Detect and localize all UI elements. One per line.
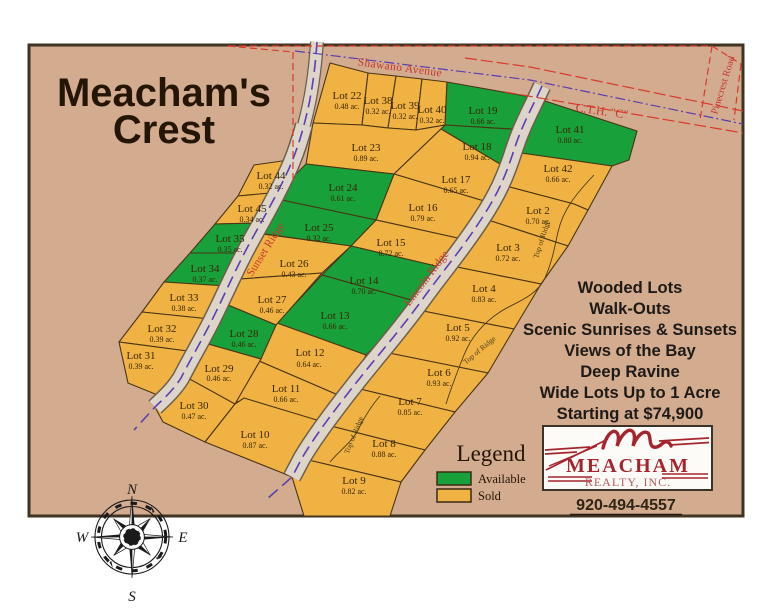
svg-text:0.72 ac.: 0.72 ac. [495, 254, 520, 263]
svg-text:Lot 26: Lot 26 [279, 258, 309, 270]
svg-text:Starting at $74,900: Starting at $74,900 [557, 404, 704, 423]
svg-text:0.35 ac.: 0.35 ac. [217, 245, 242, 254]
svg-text:Lot 9: Lot 9 [342, 475, 366, 487]
svg-text:0.94 ac.: 0.94 ac. [464, 153, 489, 162]
svg-text:Lot 15: Lot 15 [376, 237, 406, 249]
svg-text:Lot 14: Lot 14 [349, 275, 379, 287]
svg-text:Lot 31: Lot 31 [126, 350, 155, 362]
svg-text:Walk-Outs: Walk-Outs [589, 299, 670, 318]
svg-text:Lot 12: Lot 12 [295, 347, 324, 359]
svg-text:0.66 ac.: 0.66 ac. [545, 175, 570, 184]
svg-text:Lot 38: Lot 38 [363, 95, 393, 107]
svg-text:Scenic Sunrises & Sunsets: Scenic Sunrises & Sunsets [523, 320, 737, 339]
svg-text:Lot 18: Lot 18 [462, 141, 492, 153]
svg-text:0.46 ac.: 0.46 ac. [259, 306, 284, 315]
svg-text:Lot 5: Lot 5 [446, 322, 470, 334]
svg-text:S: S [128, 589, 136, 605]
svg-text:Lot 35: Lot 35 [215, 233, 245, 245]
svg-text:E: E [177, 530, 187, 546]
svg-text:Lot 45: Lot 45 [237, 203, 267, 215]
svg-text:Lot 19: Lot 19 [468, 105, 498, 117]
svg-text:0.37 ac.: 0.37 ac. [192, 275, 217, 284]
svg-text:Lot 16: Lot 16 [408, 202, 438, 214]
svg-text:Lot 11: Lot 11 [272, 383, 301, 395]
svg-text:Sold: Sold [478, 489, 502, 503]
svg-text:0.87 ac.: 0.87 ac. [242, 441, 267, 450]
svg-text:Lot 25: Lot 25 [304, 222, 334, 234]
svg-text:0.32 ac.: 0.32 ac. [258, 182, 283, 191]
svg-text:0.32 ac.: 0.32 ac. [365, 107, 390, 116]
svg-text:Lot 3: Lot 3 [496, 242, 520, 254]
svg-text:0.66 ac.: 0.66 ac. [273, 395, 298, 404]
svg-text:0.89 ac.: 0.89 ac. [353, 154, 378, 163]
svg-text:Lot 4: Lot 4 [472, 283, 496, 295]
svg-text:Lot 32: Lot 32 [147, 323, 176, 335]
svg-text:Lot 10: Lot 10 [240, 429, 270, 441]
svg-text:0.43 ac.: 0.43 ac. [281, 270, 306, 279]
svg-text:REALTY, INC.: REALTY, INC. [585, 475, 671, 489]
svg-text:Deep Ravine: Deep Ravine [580, 362, 680, 381]
svg-text:Lot 42: Lot 42 [543, 163, 572, 175]
svg-text:0.46 ac.: 0.46 ac. [206, 374, 231, 383]
svg-text:0.46 ac.: 0.46 ac. [231, 340, 256, 349]
svg-text:Lot 40: Lot 40 [417, 104, 447, 116]
svg-text:0.34 ac.: 0.34 ac. [239, 215, 264, 224]
svg-text:Lot 8: Lot 8 [372, 438, 396, 450]
svg-text:Lot 13: Lot 13 [320, 310, 350, 322]
svg-text:Lot 7: Lot 7 [398, 396, 422, 408]
svg-text:0.32 ac.: 0.32 ac. [306, 234, 331, 243]
svg-text:Lot 41: Lot 41 [555, 124, 584, 136]
svg-text:Lot 23: Lot 23 [351, 142, 381, 154]
svg-text:0.48 ac.: 0.48 ac. [334, 102, 359, 111]
svg-text:0.65 ac.: 0.65 ac. [443, 186, 468, 195]
svg-text:920-494-4557: 920-494-4557 [576, 497, 676, 514]
svg-text:Lot 27: Lot 27 [257, 294, 287, 306]
svg-text:0.92 ac.: 0.92 ac. [445, 334, 470, 343]
svg-text:0.70 ac.: 0.70 ac. [351, 287, 376, 296]
svg-text:0.72 ac.: 0.72 ac. [378, 249, 403, 258]
svg-text:0.79 ac.: 0.79 ac. [410, 214, 435, 223]
svg-text:0.39 ac.: 0.39 ac. [149, 335, 174, 344]
svg-text:N: N [126, 482, 138, 498]
svg-text:Lot 33: Lot 33 [169, 292, 199, 304]
svg-text:0.32 ac.: 0.32 ac. [392, 112, 417, 121]
svg-text:Wide Lots Up to 1 Acre: Wide Lots Up to 1 Acre [540, 383, 721, 402]
svg-text:Lot 24: Lot 24 [328, 182, 358, 194]
svg-text:Wooded Lots: Wooded Lots [578, 278, 683, 297]
svg-text:0.39 ac.: 0.39 ac. [128, 362, 153, 371]
svg-text:Lot 39: Lot 39 [390, 100, 420, 112]
svg-text:0.61 ac.: 0.61 ac. [330, 194, 355, 203]
svg-text:Legend: Legend [457, 441, 526, 466]
svg-text:Views of the Bay: Views of the Bay [564, 341, 696, 360]
svg-text:Lot 44: Lot 44 [256, 170, 286, 182]
svg-text:0.66 ac.: 0.66 ac. [470, 117, 495, 126]
svg-text:0.80 ac.: 0.80 ac. [557, 136, 582, 145]
svg-text:Lot 2: Lot 2 [526, 205, 550, 217]
svg-text:0.38 ac.: 0.38 ac. [171, 304, 196, 313]
svg-text:Lot 30: Lot 30 [179, 400, 209, 412]
svg-text:0.66 ac.: 0.66 ac. [322, 322, 347, 331]
svg-text:Lot 17: Lot 17 [441, 174, 471, 186]
svg-text:Crest: Crest [113, 108, 215, 152]
svg-text:0.93 ac.: 0.93 ac. [426, 379, 451, 388]
svg-text:Lot 28: Lot 28 [229, 328, 259, 340]
svg-text:0.82 ac.: 0.82 ac. [341, 487, 366, 496]
svg-text:Lot 22: Lot 22 [332, 90, 361, 102]
svg-text:0.47 ac.: 0.47 ac. [181, 412, 206, 421]
svg-text:0.32 ac.: 0.32 ac. [419, 116, 444, 125]
svg-text:Lot 6: Lot 6 [427, 367, 451, 379]
svg-text:0.88 ac.: 0.88 ac. [371, 450, 396, 459]
svg-text:0.85 ac.: 0.85 ac. [397, 408, 422, 417]
svg-text:Lot 34: Lot 34 [190, 263, 220, 275]
svg-text:W: W [76, 530, 90, 546]
svg-text:0.83 ac.: 0.83 ac. [471, 295, 496, 304]
svg-text:0.64 ac.: 0.64 ac. [296, 360, 321, 369]
svg-text:Available: Available [478, 472, 526, 486]
